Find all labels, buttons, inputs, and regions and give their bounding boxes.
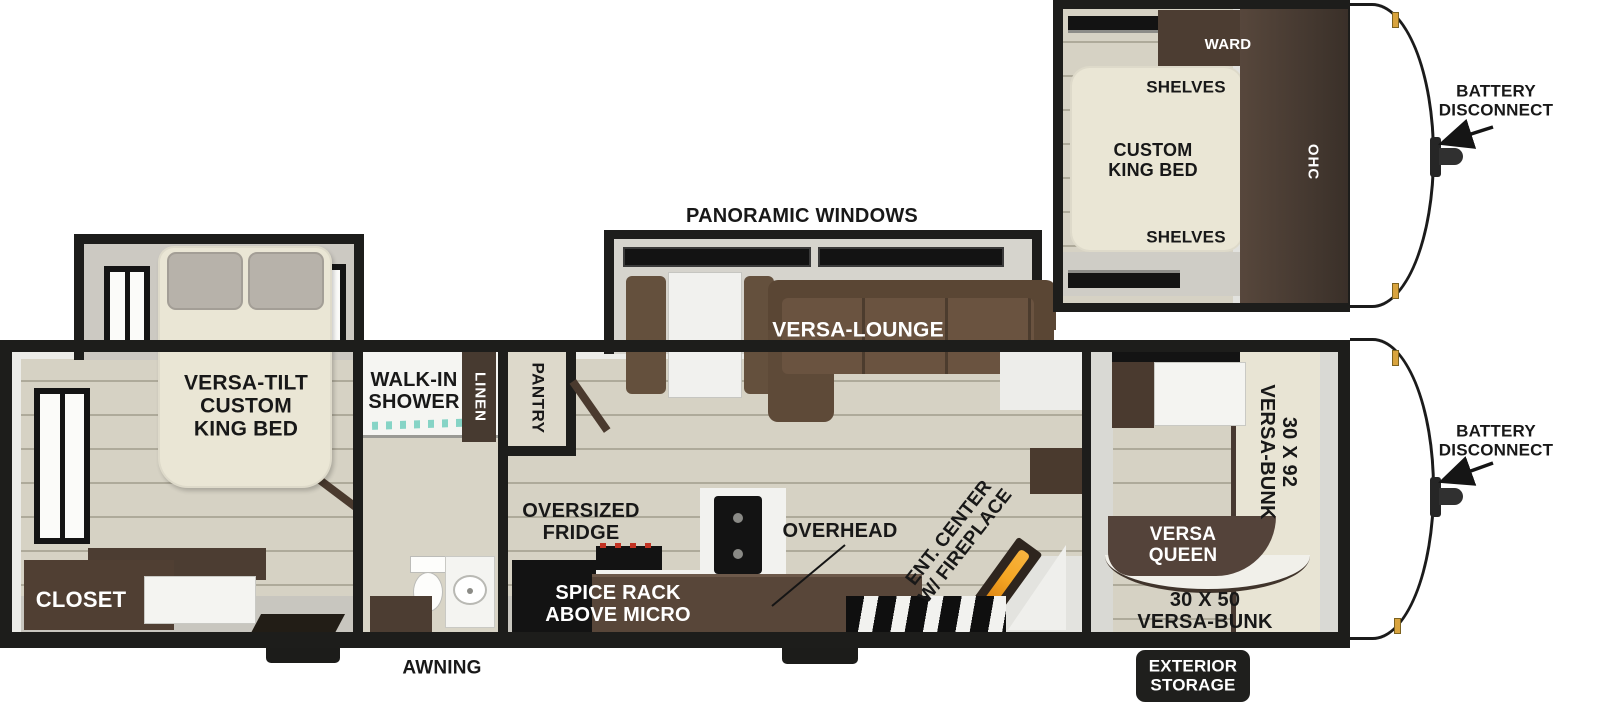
overhead-cabinet-entry: [1030, 448, 1082, 494]
versa-queen-label: VERSA QUEEN: [1149, 525, 1218, 567]
window-pane: [130, 272, 145, 344]
bunk-30x50-label: 30 X 50 VERSA-BUNK: [1137, 589, 1272, 633]
closet-label: CLOSET: [36, 588, 126, 612]
spice-rack-label: SPICE RACK ABOVE MICRO: [545, 582, 691, 626]
window-pane: [110, 272, 125, 344]
floorplan-diagram: WARD SHELVES CUSTOM KING BED OHC SHELVES…: [0, 0, 1600, 705]
stabilizer-jack: [266, 646, 340, 663]
top-wall: [0, 340, 1350, 352]
bedroom-slide-top-wall: [74, 234, 364, 244]
toilet-tank: [410, 556, 446, 573]
pantry-label: PANTRY: [528, 363, 547, 434]
window-pane: [65, 394, 85, 538]
bottom-wall: [0, 632, 1350, 648]
awning-label: AWNING: [402, 659, 481, 680]
kitchen-sink: [714, 496, 762, 574]
custom-king-bed-label: CUSTOM KING BED: [1108, 141, 1198, 181]
floor-vent: [251, 614, 345, 633]
bunk-flip-surface: [1154, 362, 1246, 426]
panoramic-window-right: [818, 247, 1004, 267]
bedroom-side-window: [34, 388, 90, 544]
battery-disconnect-label-main: BATTERY DISCONNECT: [1439, 422, 1553, 459]
battery-arrow-front: [1443, 127, 1493, 143]
rear-wall: [0, 340, 12, 648]
versa-tilt-king-bed-label: VERSA-TILT CUSTOM KING BED: [184, 371, 308, 440]
bunk-wardrobe: [1112, 362, 1154, 428]
front-cap-main: [1350, 338, 1435, 640]
shelves-bottom-label: SHELVES: [1146, 229, 1226, 248]
versa-lounge-label: VERSA-LOUNGE: [772, 318, 944, 341]
dinette-bench-left: [626, 276, 666, 394]
oversized-fridge-label: OVERSIZED FRIDGE: [522, 500, 639, 544]
left-wall-inner-face: [12, 352, 21, 632]
front-cap-inset: [1350, 3, 1435, 308]
front-wall: [1338, 340, 1350, 640]
bedroom-slide-window-left: [104, 266, 150, 350]
battery-disconnect-switch-main-arm: [1439, 488, 1463, 505]
right-wall-inner-face: [1320, 352, 1340, 632]
bunk-30x92-label: 30 X 92 VERSA-BUNK: [1256, 384, 1300, 519]
inset-window-top: [1068, 16, 1162, 33]
entry-wall-corner: [1000, 352, 1082, 410]
bed-pillow: [167, 252, 243, 310]
walk-in-shower-label: WALK-IN SHOWER: [368, 369, 459, 413]
ward-label: WARD: [1205, 37, 1252, 54]
ohc-label: OHC: [1304, 144, 1321, 180]
battery-disconnect-switch-inset-arm: [1439, 148, 1463, 165]
bed-pillow: [248, 252, 324, 310]
inset-ohc-cabinet: [1240, 9, 1348, 303]
dinette-table: [668, 272, 742, 398]
kitchen-sink-drain: [733, 549, 743, 559]
living-slide-top-wall: [604, 230, 1042, 239]
kitchen-sink-drain: [733, 513, 743, 523]
divider-bath-kitchen: [498, 344, 508, 636]
inset-window-bottom: [1068, 270, 1180, 288]
battery-disconnect-label-front: BATTERY DISCONNECT: [1439, 82, 1553, 119]
cap-hinge: [1392, 350, 1399, 366]
panoramic-window-left: [623, 247, 811, 267]
window-pane: [40, 394, 60, 538]
divider-living-bunkroom: [1082, 344, 1091, 636]
shelves-top-label: SHELVES: [1146, 79, 1226, 98]
exterior-storage-label: EXTERIOR STORAGE: [1149, 657, 1238, 694]
bunkroom-wall-face: [1091, 352, 1113, 632]
bath-vanity: [370, 596, 432, 632]
panoramic-windows-label: PANORAMIC WINDOWS: [686, 205, 918, 227]
bedroom-dresser: [144, 576, 256, 624]
overhead-label: OVERHEAD: [783, 520, 898, 542]
linen-label: LINEN: [471, 372, 488, 422]
cap-hinge: [1392, 283, 1399, 299]
sink-drain: [467, 588, 473, 594]
stabilizer-jack: [782, 648, 858, 664]
battery-arrow-main: [1443, 463, 1493, 481]
divider-bedroom-bath: [353, 344, 363, 636]
cap-hinge: [1392, 12, 1399, 28]
cap-hinge: [1394, 618, 1401, 634]
